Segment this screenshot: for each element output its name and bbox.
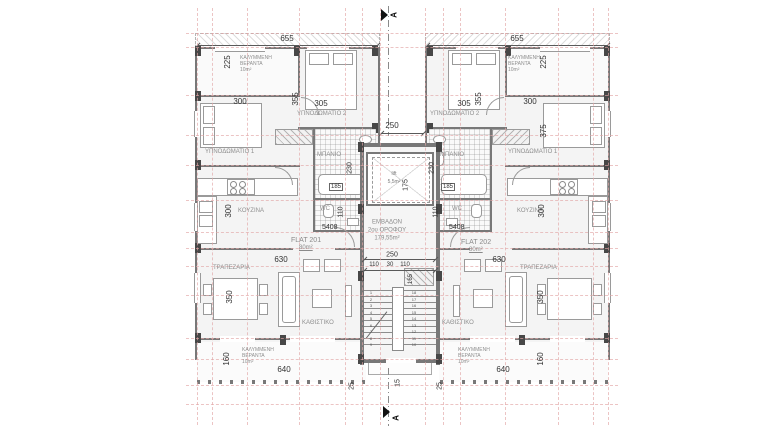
- section-arrow-bottom-icon: [383, 406, 390, 418]
- room-label-bedroom1: ΥΠΝΟΔΩΜΑΤΙΟ 1: [508, 149, 557, 156]
- column-pier: [436, 354, 442, 364]
- sink-bowl: [199, 201, 213, 213]
- dim-label: 305: [314, 100, 327, 108]
- dim-line: [364, 259, 436, 260]
- pillow: [590, 106, 602, 124]
- dining-table: [213, 278, 258, 320]
- tv-unit: [453, 285, 460, 317]
- stair-step-number: 6: [366, 324, 376, 328]
- flat-name: FLAT 202: [461, 239, 491, 246]
- dim-label: 25: [349, 382, 356, 390]
- column-pier: [436, 142, 442, 152]
- dim-label: 110: [369, 262, 379, 268]
- veranda-door-opening: [220, 336, 255, 342]
- dim-label: 30: [387, 262, 394, 268]
- stair-numbers-left: 123456789: [366, 291, 376, 347]
- sink-bowl: [199, 215, 213, 227]
- balcony-railing: [439, 380, 608, 384]
- dim-line: [381, 133, 424, 134]
- stair-step-number: 12: [409, 330, 419, 334]
- tv-unit: [345, 285, 352, 317]
- dim-label: 250: [385, 122, 398, 130]
- gridline-horizontal: [186, 385, 618, 386]
- column-pier: [436, 271, 442, 281]
- veranda-door-opening: [290, 336, 335, 342]
- area-note-line2: 2ου ΟΡΟΦΟΥ: [368, 228, 406, 235]
- room-label-bath: ΜΠΑΝΙΟ: [317, 152, 341, 159]
- stair-step-number: 11: [409, 337, 419, 341]
- dim-label: 640: [496, 366, 509, 374]
- room-label-bedroom1: ΥΠΝΟΔΩΜΑΤΙΟ 1: [205, 149, 254, 156]
- room-label-bedroom2: ΥΠΝΟΔΩΜΑΤΙΟ 2: [297, 111, 346, 118]
- window: [540, 45, 590, 52]
- stove-burner-icon: [230, 188, 237, 195]
- area-note-line1: ΕΜΒΑΔΟΝ: [372, 220, 402, 227]
- gridline-horizontal: [186, 404, 618, 405]
- dim-label: 630: [492, 256, 505, 264]
- dim-line: [427, 45, 608, 46]
- stair-step-number: 17: [409, 298, 419, 302]
- stair-step-number: 3: [366, 304, 376, 308]
- window: [215, 45, 265, 52]
- wc-sink: [347, 218, 359, 226]
- stair-step-number: 1: [366, 291, 376, 295]
- column-pier: [195, 333, 201, 343]
- dim-label: 305: [457, 100, 470, 108]
- room-label-wc: WC: [452, 206, 462, 213]
- flat-left-geometry: [195, 33, 380, 385]
- room-label-bath: ΜΠΑΝΙΟ: [440, 152, 464, 159]
- column-pier: [604, 333, 610, 343]
- stove-burner-icon: [568, 181, 575, 188]
- dim-label: 300: [538, 204, 546, 217]
- stove-burner-icon: [559, 188, 566, 195]
- entry-landing: [368, 363, 432, 375]
- dim-line: [197, 45, 378, 46]
- sink-bowl: [592, 215, 606, 227]
- column-pier: [294, 46, 300, 56]
- stair-step-number: 16: [409, 304, 419, 308]
- stove-burner-icon: [239, 188, 246, 195]
- armchair: [464, 259, 481, 272]
- dim-label: 110: [338, 206, 345, 217]
- dim-label: 160: [537, 352, 545, 365]
- dim-label: 230: [347, 162, 354, 174]
- dim-label: 350: [537, 290, 545, 303]
- dim-label: 25: [437, 382, 444, 390]
- stair-step-number: 14: [409, 317, 419, 321]
- pillow: [333, 53, 353, 65]
- armchair: [303, 259, 320, 272]
- core-wall: [360, 143, 440, 147]
- stair-step-number: 4: [366, 311, 376, 315]
- dim-label: 225: [540, 55, 548, 68]
- wall: [505, 165, 610, 167]
- dining-table: [547, 278, 592, 320]
- stair-step-number: 5: [366, 317, 376, 321]
- stair-step-number: 18: [409, 291, 419, 295]
- sink-bowl: [592, 201, 606, 213]
- stair-step-number: 7: [366, 330, 376, 334]
- sofa-cushion: [509, 276, 523, 323]
- section-arrow-top-icon: [381, 9, 388, 21]
- dim-label: 110: [400, 262, 410, 268]
- room-label-dining: ΤΡΑΠΕΖΑΡΙΑ: [520, 265, 557, 272]
- lift-label: lift: [392, 172, 397, 178]
- dim-label: 225: [224, 55, 232, 68]
- pillow: [309, 53, 329, 65]
- door-tag: 5408: [322, 224, 338, 231]
- flat-name: FLAT 201: [291, 237, 321, 244]
- room-label-wc: WC: [320, 206, 330, 213]
- dim-label: 655: [510, 35, 523, 43]
- section-line: [388, 6, 389, 136]
- dim-label: 185: [441, 183, 455, 191]
- dim-label: 300: [523, 98, 536, 106]
- veranda-door-opening: [550, 336, 585, 342]
- room-label-dining: ΤΡΑΠΕΖΑΡΙΑ: [213, 265, 250, 272]
- window: [194, 273, 201, 303]
- column-pier: [604, 243, 610, 253]
- dim-label: 355: [475, 92, 483, 105]
- pillow: [590, 127, 602, 145]
- dim-label: 250: [386, 252, 398, 259]
- dim-label: 640: [277, 366, 290, 374]
- dim-label: 300: [233, 98, 246, 106]
- dim-label: 175: [403, 179, 410, 191]
- coffee-table: [473, 289, 493, 308]
- chair: [593, 303, 602, 315]
- room-label-living: ΚΑΘΙΣΤΙΚΟ: [302, 320, 334, 327]
- stair-well: [392, 287, 404, 351]
- chair: [537, 303, 546, 315]
- column-pier: [195, 160, 201, 170]
- dim-line: [364, 270, 436, 271]
- dim-label: 655: [280, 35, 293, 43]
- section-label-top: A: [390, 12, 399, 18]
- room-label-kitchen: ΚΟΥΖΙΝΑ: [238, 208, 264, 215]
- balcony-railing: [197, 380, 366, 384]
- dim-label: 185: [329, 183, 343, 191]
- column-pier: [280, 335, 286, 345]
- coffee-table: [312, 289, 332, 308]
- chair: [203, 284, 212, 296]
- lift-area: 5,5m²: [388, 180, 401, 186]
- wall: [512, 248, 610, 250]
- stove-burner-icon: [230, 181, 237, 188]
- chair: [203, 303, 212, 315]
- wall: [195, 248, 293, 250]
- column-pier: [519, 335, 525, 345]
- dim-label: 355: [292, 92, 300, 105]
- chair: [259, 284, 268, 296]
- room-label-living: ΚΑΘΙΣΤΙΚΟ: [442, 320, 474, 327]
- floor-plan-drawing: A A 655 225 ΚΑΛΥΜΜΕΝΗ ΒΕΡΑΝΤΑ 10m² 300 Υ…: [0, 0, 768, 432]
- wall: [195, 95, 300, 97]
- dim-label: 110: [433, 206, 440, 217]
- pillow: [476, 53, 496, 65]
- column-pier: [427, 46, 433, 56]
- wall: [505, 95, 610, 97]
- dim-label: 15: [395, 379, 402, 387]
- stair-step-number: 2: [366, 298, 376, 302]
- pillow: [452, 53, 472, 65]
- wardrobe: [492, 129, 530, 145]
- chair: [259, 303, 268, 315]
- pillow: [203, 127, 215, 145]
- lift-car: [372, 157, 430, 203]
- stove-burner-icon: [239, 181, 246, 188]
- stove-burner-icon: [568, 188, 575, 195]
- column-pier: [358, 354, 364, 364]
- stair-numbers-right: 181716151413121110: [409, 291, 419, 347]
- wardrobe: [275, 129, 313, 145]
- column-pier: [358, 204, 364, 214]
- area-note-line3: 179,55m²: [374, 236, 399, 243]
- room-label-veranda-bottom: ΚΑΛΥΜΜΕΝΗ ΒΕΡΑΝΤΑ 10m²: [242, 348, 274, 365]
- column-pier: [604, 91, 610, 101]
- stair-step-number: 9: [366, 343, 376, 347]
- toilet: [471, 204, 482, 218]
- stove-burner-icon: [559, 181, 566, 188]
- dim-label: 375: [540, 124, 548, 137]
- column-pier: [358, 142, 364, 152]
- chair: [593, 284, 602, 296]
- core-wall: [436, 143, 440, 365]
- room-label-bedroom2: ΥΠΝΟΔΩΜΑΤΙΟ 2: [430, 111, 479, 118]
- dim-label: 165: [408, 274, 414, 284]
- stair-step-number: 13: [409, 324, 419, 328]
- armchair: [324, 259, 341, 272]
- flat-area: 80m²: [469, 247, 483, 253]
- veranda-door-opening: [470, 336, 515, 342]
- column-pier: [195, 243, 201, 253]
- dim-label: 300: [225, 204, 233, 217]
- room-label-veranda-top: ΚΑΛΥΜΜΕΝΗ ΒΕΡΑΝΤΑ 10m²: [240, 56, 272, 73]
- stair-step-number: 8: [366, 337, 376, 341]
- pillow: [203, 106, 215, 124]
- door-tag: 5408: [449, 224, 465, 231]
- dim-label: 350: [226, 290, 234, 303]
- room-label-veranda-top: ΚΑΛΥΜΜΕΝΗ ΒΕΡΑΝΤΑ 10m²: [508, 56, 540, 73]
- wall: [195, 165, 300, 167]
- sofa-cushion: [282, 276, 296, 323]
- column-pier: [195, 91, 201, 101]
- stair-step-number: 15: [409, 311, 419, 315]
- dim-label: 230: [429, 162, 436, 174]
- window: [604, 111, 611, 137]
- room-label-veranda-bottom: ΚΑΛΥΜΜΕΝΗ ΒΕΡΑΝΤΑ 10m²: [458, 348, 490, 365]
- dim-label: 630: [274, 256, 287, 264]
- section-label-bottom: A: [392, 415, 401, 421]
- flat-area: 80m²: [299, 245, 313, 251]
- column-pier: [604, 160, 610, 170]
- dim-label: 160: [223, 352, 231, 365]
- stair-step-number: 10: [409, 343, 419, 347]
- window: [604, 273, 611, 303]
